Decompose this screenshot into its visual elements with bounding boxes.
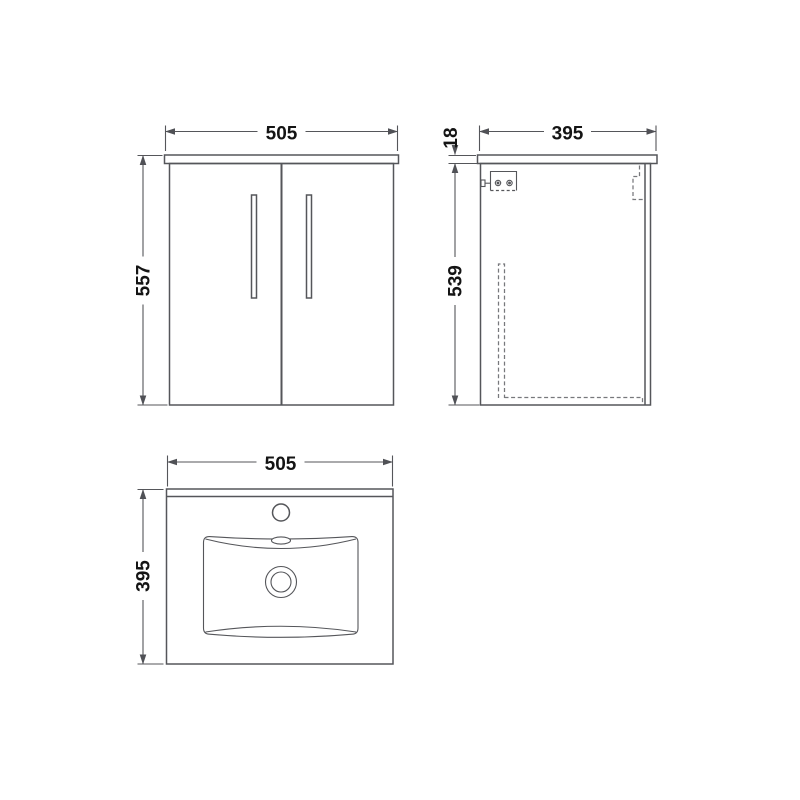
- plan-depth-label-group: 395: [133, 552, 155, 600]
- side-depth-label: 395: [552, 124, 584, 145]
- front-height-label-group: 557: [133, 257, 155, 305]
- side-bottom-shelf-hidden-line: [505, 398, 643, 405]
- tap-hole: [273, 504, 290, 521]
- side-height-label: 539: [446, 265, 467, 297]
- side-height-label-group: 539: [445, 257, 467, 305]
- bracket-hook: [481, 180, 485, 187]
- bracket-outline: [491, 172, 517, 191]
- drain-outer-ring: [266, 567, 297, 598]
- side-counter-thickness-label-group: 18: [441, 127, 462, 148]
- front-countertop: [165, 155, 399, 164]
- side-view: [449, 126, 658, 406]
- dimension-labels: 505 557 395 18 539 505 395: [133, 120, 592, 600]
- plan-view: [138, 456, 394, 665]
- basin: [204, 537, 359, 638]
- side-hinge-hidden-line: [633, 166, 645, 200]
- plan-depth-label: 395: [134, 560, 155, 592]
- bracket-screw-left-center: [497, 182, 499, 184]
- side-hidden-lines: [499, 166, 645, 405]
- front-width-label: 505: [266, 124, 298, 145]
- linework: [138, 126, 658, 665]
- side-counter-thickness-dimension: [449, 148, 480, 164]
- overflow-slot: [272, 537, 291, 544]
- side-countertop: [478, 155, 658, 164]
- wall-bracket: [481, 172, 517, 191]
- front-right-door-handle: [307, 195, 312, 298]
- side-back-panel-hidden-line: [499, 264, 505, 398]
- front-height-label: 557: [134, 265, 155, 297]
- bracket-screw-right-center: [509, 182, 511, 184]
- front-left-door-handle: [252, 195, 257, 298]
- side-cabinet-body: [481, 164, 651, 406]
- plan-width-label: 505: [265, 454, 297, 475]
- drawing-canvas: 505 557 395 18 539 505 395: [0, 0, 800, 800]
- basin-inner-bottom-curve: [206, 626, 357, 632]
- front-view: [138, 126, 399, 406]
- side-counter-thickness-label: 18: [441, 127, 462, 148]
- vanity-technical-drawing: 505 557 395 18 539 505 395: [0, 0, 800, 800]
